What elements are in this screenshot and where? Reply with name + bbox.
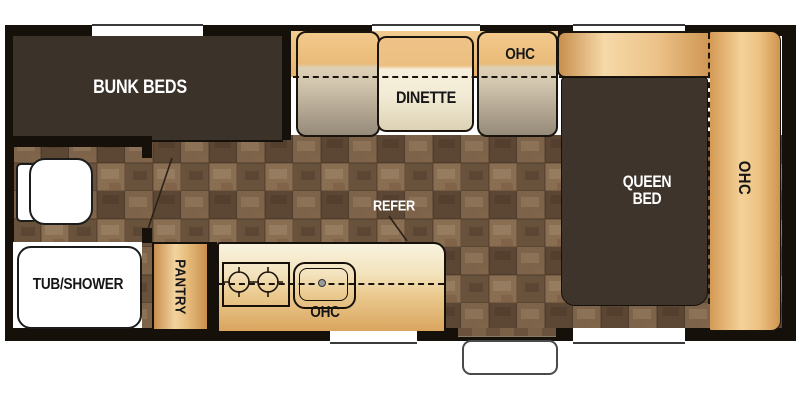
wall-bath-stub-top: [142, 147, 152, 158]
tub-shower-label: TUB/SHOWER: [33, 276, 123, 294]
sink-basin: [299, 268, 348, 301]
pantry-label: PANTRY: [172, 259, 189, 314]
wall-bath-top: [5, 136, 152, 147]
bunk-beds-label: BUNK BEDS: [93, 77, 187, 99]
wall-bunk-right: [282, 25, 291, 140]
kitchen-ohc-label: OHC: [310, 304, 339, 322]
wall-right: [782, 25, 796, 341]
wall-bath-stub-bottom: [142, 228, 152, 243]
dinette-ohc-label: OHC: [505, 46, 534, 64]
queen-ohc-label: OHC: [734, 161, 754, 196]
queen-bed-headboard: [557, 31, 710, 78]
entry-step: [462, 340, 558, 375]
refer-label: REFER: [373, 198, 415, 215]
entry-door-opening: [458, 328, 556, 337]
dinette-label: DINETTE: [396, 88, 456, 108]
queen-bed-label: QUEEN BED: [616, 174, 679, 208]
floor-plan: BUNK BEDS TUB/SHOWER PANTRY OHC REFER OH…: [0, 0, 800, 400]
dinette-ohc-dashed-line: [293, 76, 557, 78]
toilet-bowl: [29, 158, 93, 225]
wall-pantry-right: [207, 242, 217, 331]
dinette-table: [377, 36, 474, 132]
window: [573, 328, 685, 344]
dinette-bench-left: [296, 31, 380, 137]
stove: [222, 262, 290, 307]
